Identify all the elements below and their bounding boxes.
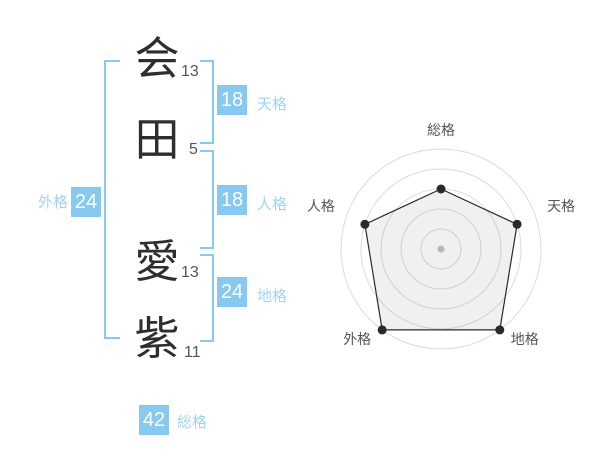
name-fortune-panel: 外格 24 会 13 田 5 愛 13 紫 11 18 天格 18 人格 24 … (0, 0, 600, 470)
gaikaku-score-badge: 24 (71, 187, 101, 217)
tenkaku-score-badge: 18 (217, 85, 247, 115)
radar-axis-label: 地格 (511, 331, 539, 347)
radar-axis-label: 総格 (427, 122, 455, 138)
gaikaku-label: 外格 (38, 195, 68, 210)
radar-axis-label: 天格 (547, 198, 575, 214)
jinkaku-label: 人格 (257, 197, 287, 212)
radar-axis-label: 外格 (343, 331, 371, 347)
chikaku-score-badge: 24 (217, 277, 247, 307)
radar-data-point (378, 325, 387, 334)
radar-data-point (437, 185, 446, 194)
stroke-count-3: 13 (181, 265, 199, 281)
stroke-count-4: 11 (184, 345, 201, 361)
soukaku-label: 総格 (177, 415, 207, 430)
radar-data-polygon (365, 189, 517, 330)
name-char-3: 愛 (133, 238, 181, 286)
soukaku-score-badge: 42 (139, 405, 169, 435)
gaikaku-bracket (104, 60, 120, 339)
radar-chart: 総格天格地格外格人格 (301, 109, 581, 389)
radar-axis-label: 人格 (307, 198, 335, 214)
radar-data-point (360, 220, 369, 229)
tenkaku-label: 天格 (257, 97, 287, 112)
soukaku-score-value: 42 (143, 409, 165, 432)
chikaku-bracket (200, 254, 214, 342)
stroke-count-1: 13 (181, 64, 199, 80)
radar-data-point (495, 325, 504, 334)
gaikaku-score-value: 24 (75, 191, 97, 214)
chikaku-score-value: 24 (221, 281, 243, 304)
jinkaku-bracket (200, 150, 214, 249)
chikaku-label: 地格 (257, 289, 287, 304)
radar-data-point (513, 220, 522, 229)
name-char-2: 田 (133, 116, 181, 164)
stroke-count-2: 5 (189, 142, 198, 158)
tenkaku-bracket (200, 60, 214, 144)
jinkaku-score-badge: 18 (217, 185, 247, 215)
name-char-4: 紫 (133, 315, 181, 363)
name-char-1: 会 (133, 35, 181, 83)
tenkaku-score-value: 18 (221, 89, 243, 112)
jinkaku-score-value: 18 (221, 189, 243, 212)
